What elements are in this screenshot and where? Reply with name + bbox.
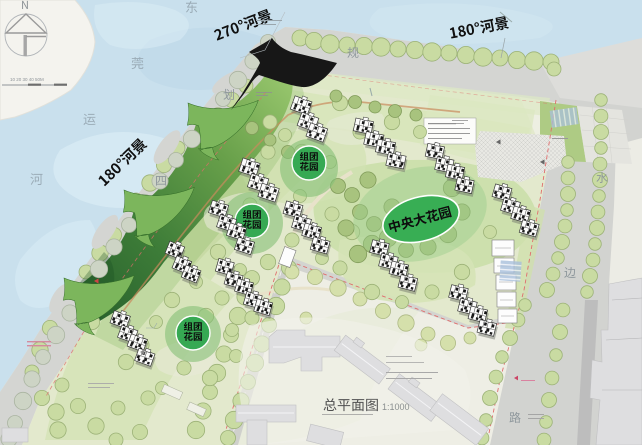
svg-text:1:1000: 1:1000: [382, 402, 410, 412]
svg-text:10 20 30 40 50M: 10 20 30 40 50M: [10, 77, 44, 82]
